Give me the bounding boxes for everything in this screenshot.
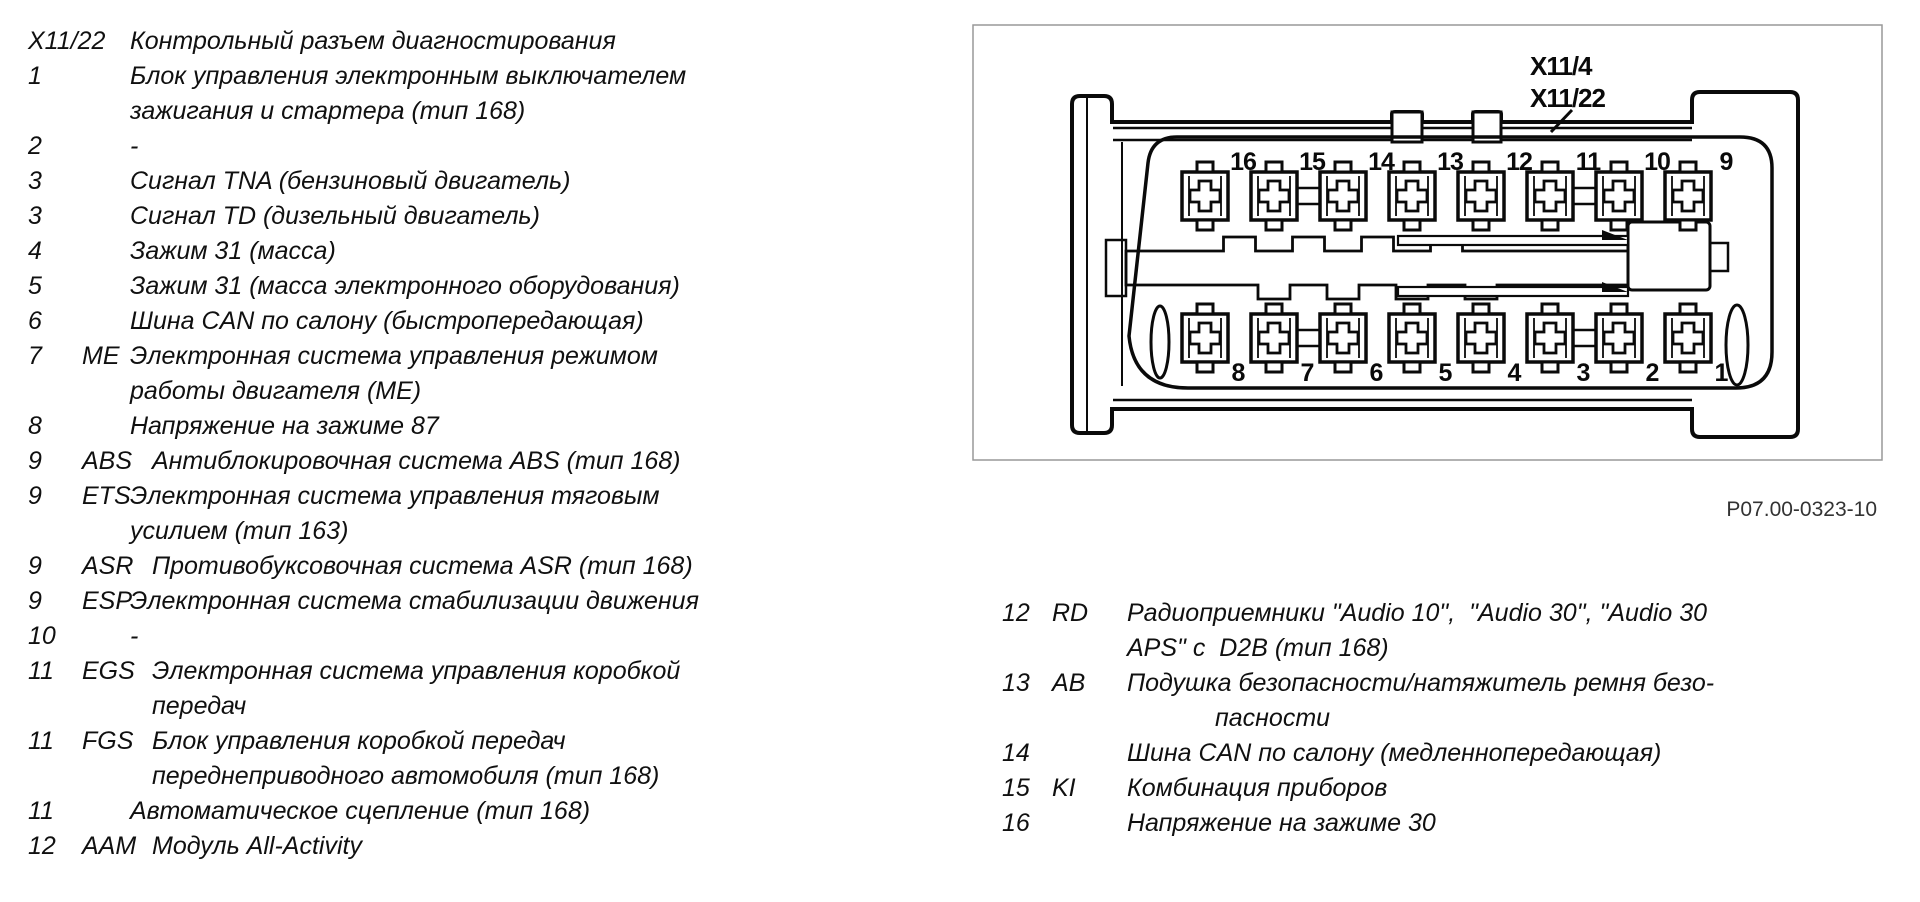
connector-label-x11-22: X11/22 bbox=[1530, 83, 1606, 113]
pin-number-figure: 9 bbox=[1720, 148, 1733, 176]
pin-contact: 5 bbox=[1389, 304, 1453, 387]
blade-strip bbox=[1398, 236, 1628, 245]
blade-strip bbox=[1398, 287, 1628, 296]
pin-contact: 14 bbox=[1320, 148, 1395, 230]
manual-page: X11/22Контрольный разъем диагностировани… bbox=[0, 0, 1920, 902]
pin-contact: 1 bbox=[1665, 304, 1729, 387]
pin-number-figure: 5 bbox=[1439, 359, 1453, 387]
pin-contact: 2 bbox=[1596, 304, 1659, 387]
pin-number-figure: 4 bbox=[1508, 359, 1522, 387]
key-bar-head-lug bbox=[1710, 243, 1728, 271]
pins-layer: 16815714613512411310291 bbox=[1182, 148, 1733, 387]
connector-label-x11-4: X11/4 bbox=[1530, 51, 1593, 81]
pin-contact: 13 bbox=[1389, 148, 1463, 230]
pin-contact: 4 bbox=[1458, 304, 1522, 387]
oval-slot-right bbox=[1726, 305, 1748, 385]
pin-number-figure: 7 bbox=[1301, 359, 1314, 387]
pin-contact: 9 bbox=[1665, 148, 1733, 230]
pin-contact: 10 bbox=[1596, 148, 1670, 230]
figure-caption: P07.00-0323-10 bbox=[1726, 498, 1877, 521]
pin-number-figure: 8 bbox=[1232, 359, 1246, 387]
pin-contact: 12 bbox=[1458, 148, 1532, 230]
key-bar-head bbox=[1628, 222, 1710, 290]
connector-housing-outline bbox=[1072, 92, 1798, 437]
pin-contact: 6 bbox=[1320, 304, 1383, 387]
pin-number-figure: 3 bbox=[1577, 359, 1590, 387]
connector-figure: 16815714613512411310291 X11/4 X11/22 P07… bbox=[0, 0, 1920, 902]
pin-number-figure: 2 bbox=[1646, 359, 1659, 387]
pin-contact: 16 bbox=[1182, 148, 1256, 230]
pin-number-figure: 6 bbox=[1370, 359, 1383, 387]
pin-number-figure: 1 bbox=[1715, 359, 1729, 387]
oval-slot-left bbox=[1151, 306, 1169, 378]
pin-contact: 8 bbox=[1182, 304, 1246, 387]
